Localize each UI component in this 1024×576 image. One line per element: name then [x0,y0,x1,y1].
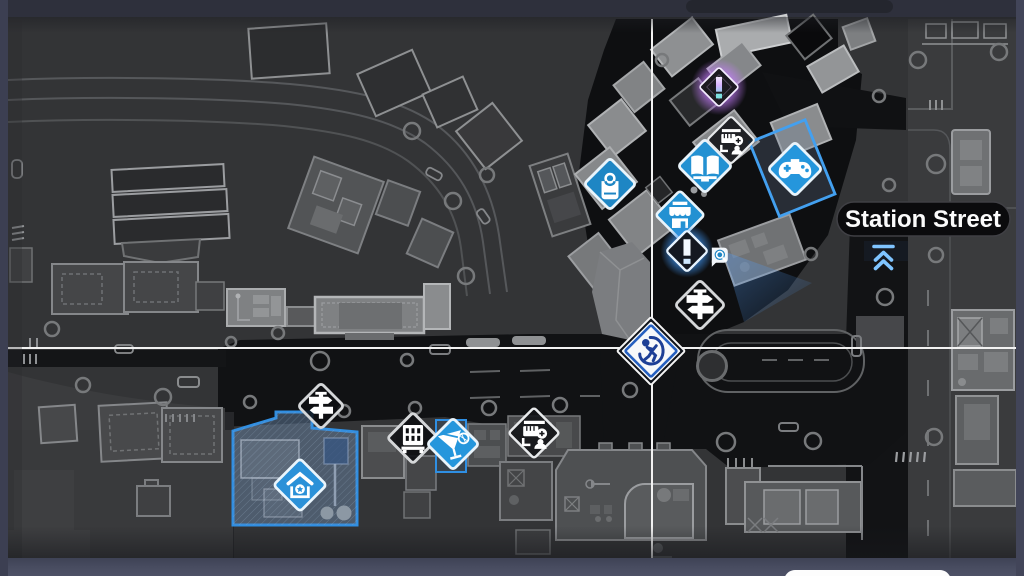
svg-text:Station Street: Station Street [845,206,1001,233]
